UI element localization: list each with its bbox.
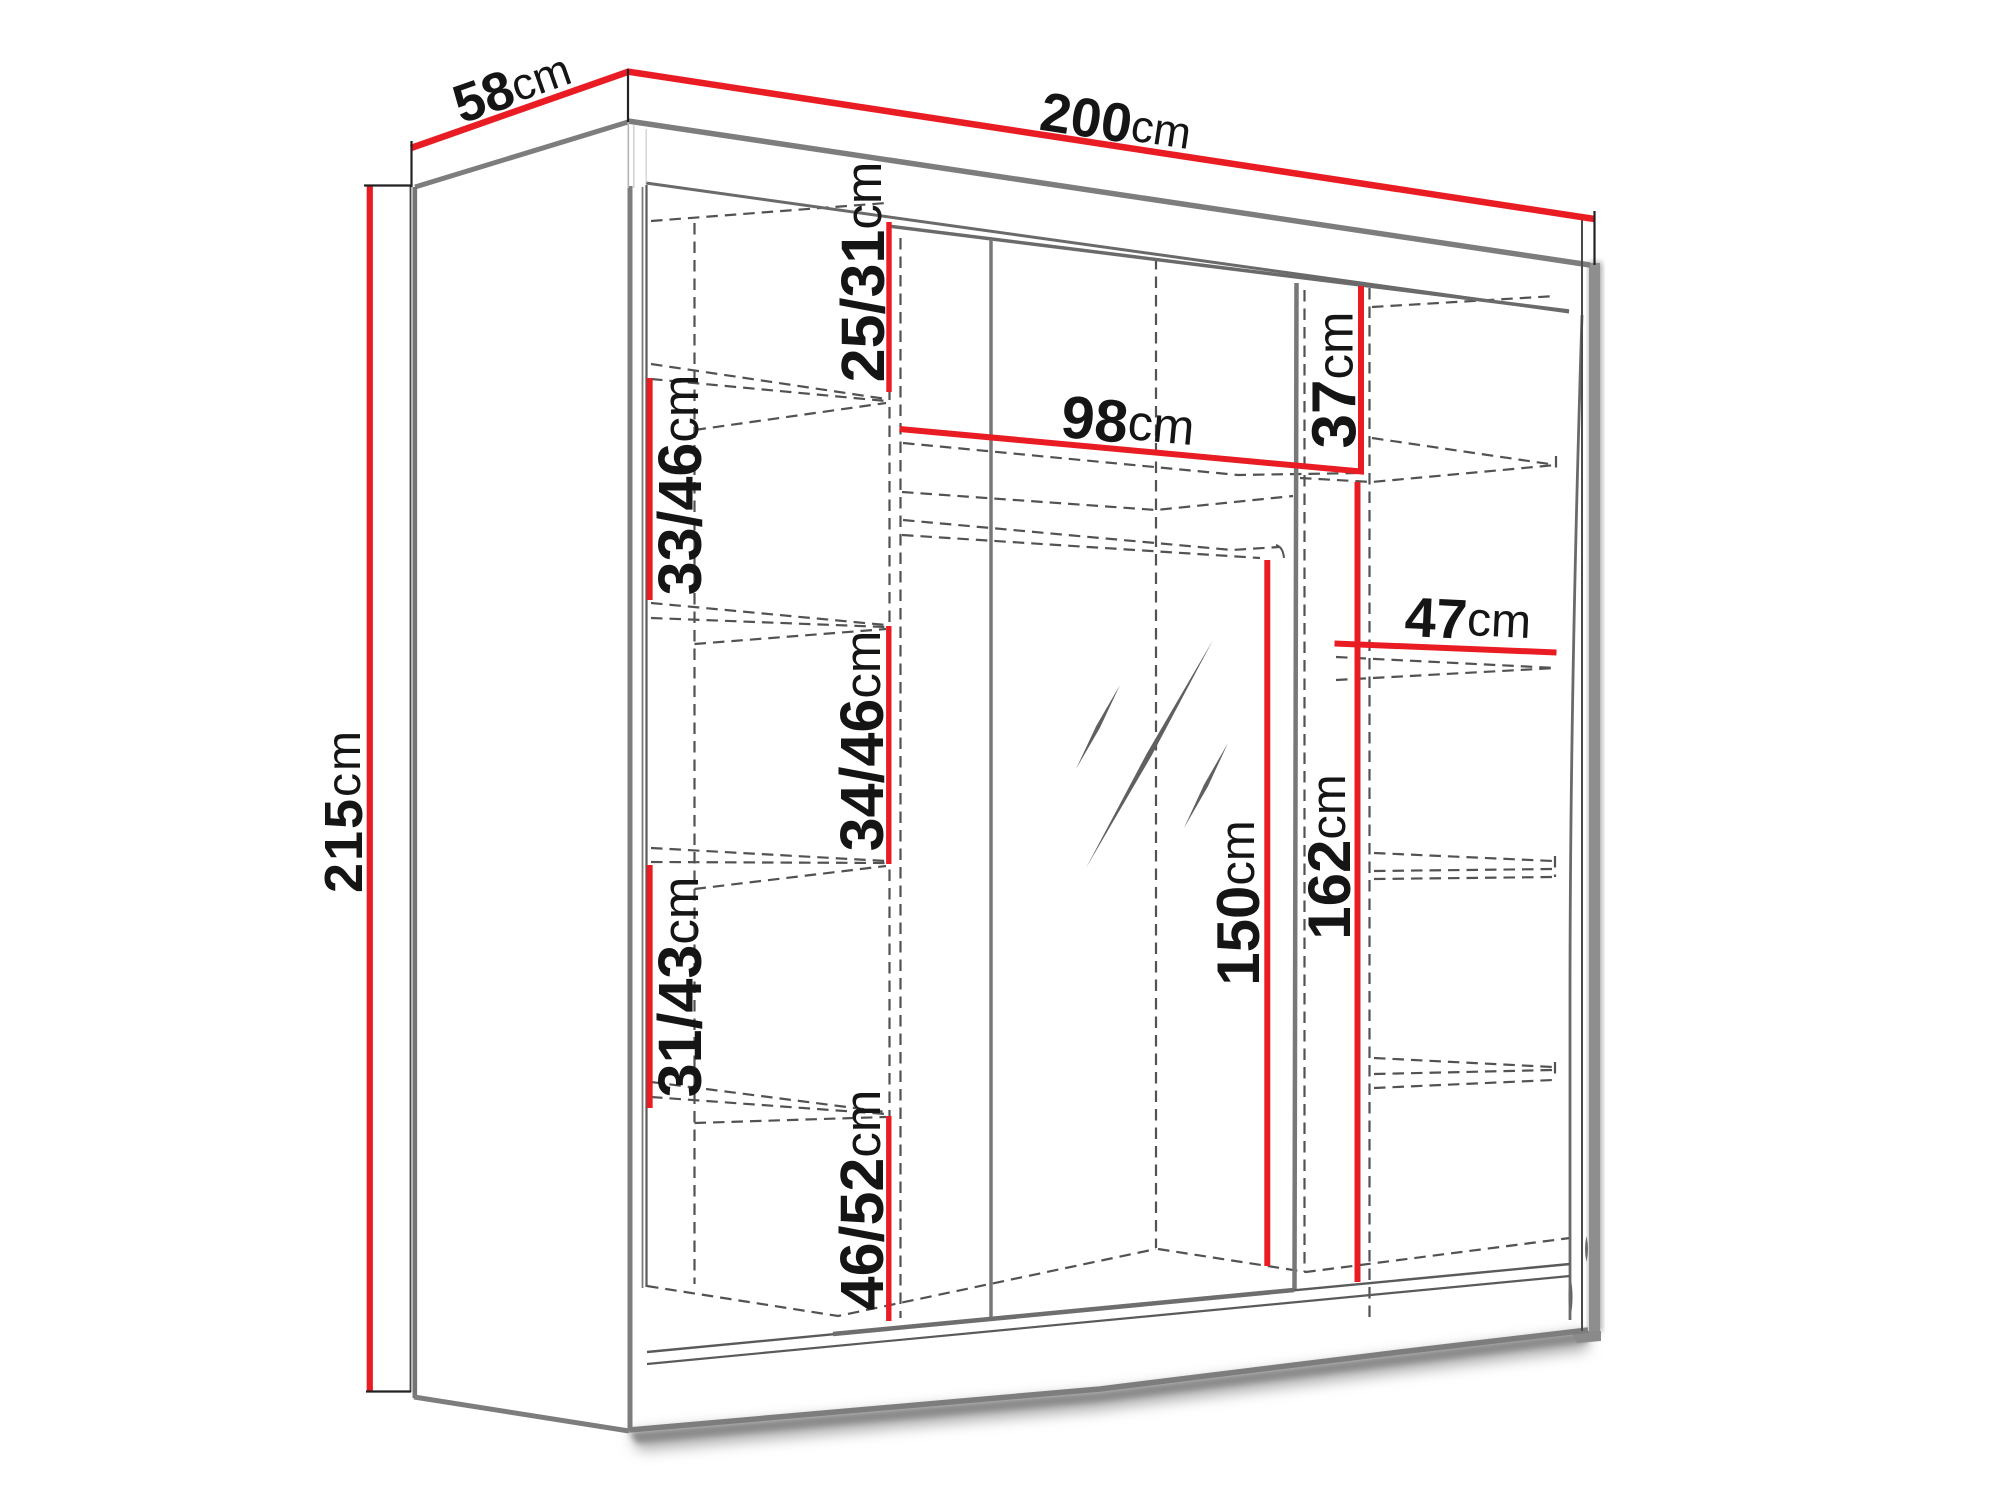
svg-text:200cm: 200cm xyxy=(1036,80,1195,164)
svg-text:46/52cm: 46/52cm xyxy=(828,1090,896,1311)
svg-text:215cm: 215cm xyxy=(314,729,374,893)
svg-text:150cm: 150cm xyxy=(1205,820,1272,985)
svg-text:58cm: 58cm xyxy=(445,39,578,135)
svg-text:162cm: 162cm xyxy=(1296,774,1363,939)
svg-text:34/46cm: 34/46cm xyxy=(828,631,896,852)
svg-text:37cm: 37cm xyxy=(1300,312,1369,449)
svg-text:33/46cm: 33/46cm xyxy=(646,375,714,596)
svg-text:98cm: 98cm xyxy=(1058,382,1197,461)
svg-text:25/31cm: 25/31cm xyxy=(829,162,897,383)
svg-text:31/43cm: 31/43cm xyxy=(646,877,714,1098)
svg-text:47cm: 47cm xyxy=(1403,584,1532,653)
